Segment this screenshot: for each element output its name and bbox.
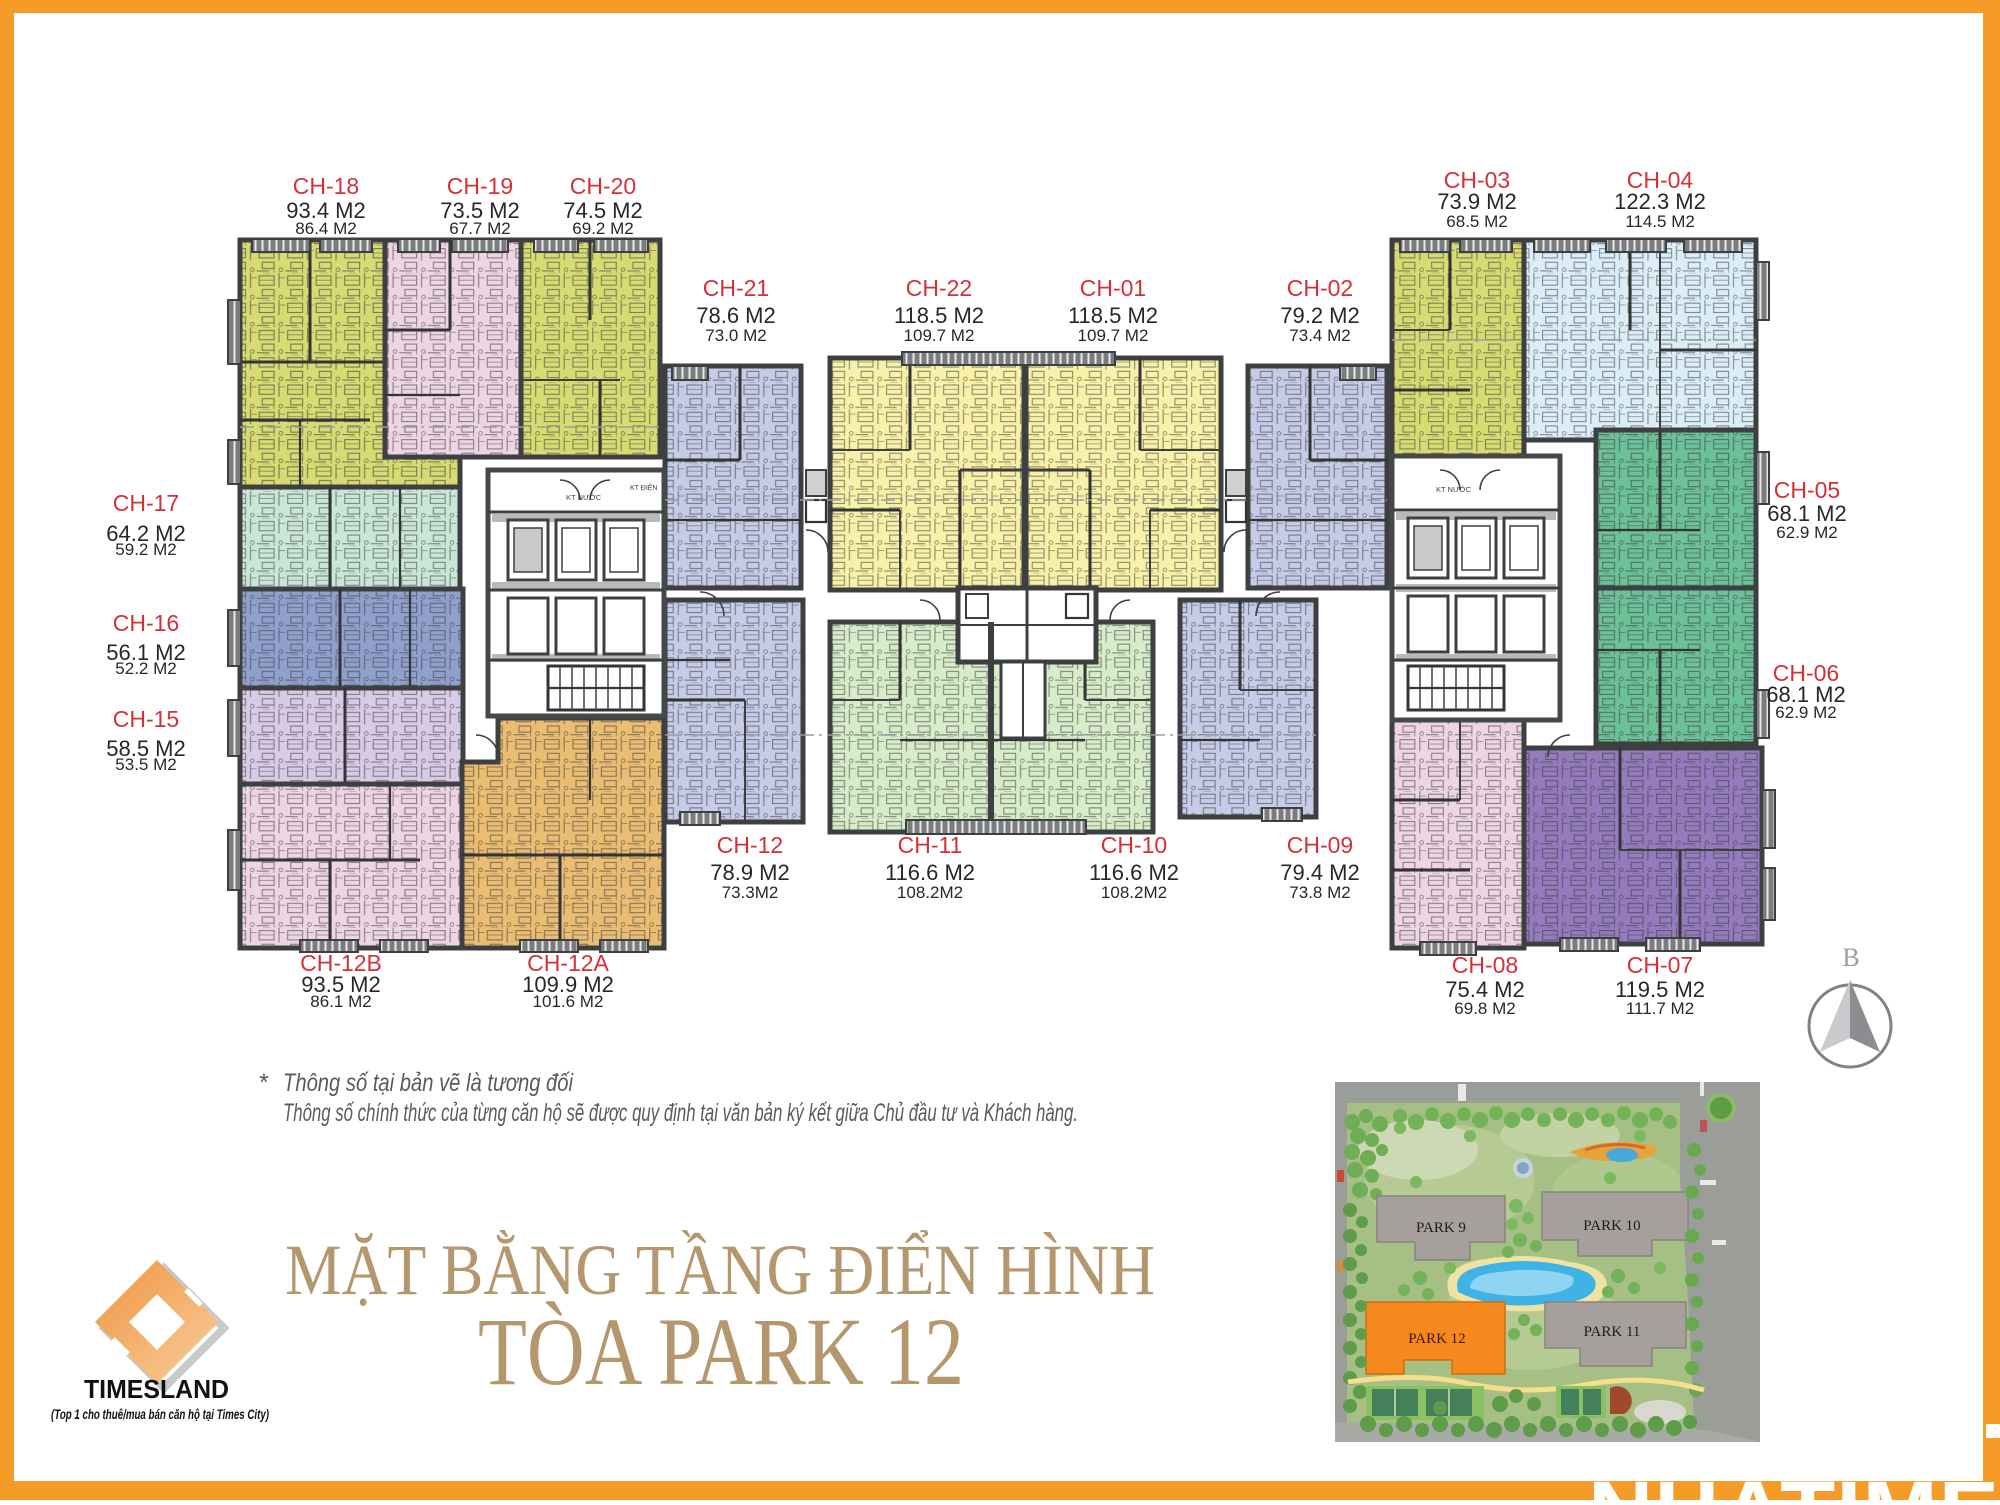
svg-text:KT NƯỚC: KT NƯỚC	[566, 493, 602, 502]
svg-text:52.2 M2: 52.2 M2	[115, 659, 176, 678]
svg-text:79.4 M2: 79.4 M2	[1280, 860, 1360, 885]
svg-text:78.6 M2: 78.6 M2	[696, 303, 776, 328]
svg-text:73.9 M2: 73.9 M2	[1437, 189, 1517, 214]
svg-text:CH-11: CH-11	[898, 832, 963, 858]
svg-text:118.5 M2: 118.5 M2	[894, 303, 984, 328]
svg-text:CH-08: CH-08	[1452, 952, 1518, 978]
svg-text:59.2 M2: 59.2 M2	[115, 540, 176, 559]
svg-text:116.6 M2: 116.6 M2	[1089, 860, 1179, 885]
svg-text:86.1 M2: 86.1 M2	[310, 992, 371, 1011]
svg-text:118.5 M2: 118.5 M2	[1068, 303, 1158, 328]
svg-text:116.6 M2: 116.6 M2	[885, 860, 975, 885]
svg-text:108.2M2: 108.2M2	[897, 883, 963, 902]
svg-text:62.9 M2: 62.9 M2	[1776, 523, 1837, 542]
svg-text:CH-17: CH-17	[113, 490, 179, 516]
svg-text:PARK 9: PARK 9	[1416, 1220, 1466, 1236]
svg-text:69.8 M2: 69.8 M2	[1454, 999, 1515, 1018]
svg-text:122.3 M2: 122.3 M2	[1614, 189, 1706, 214]
svg-text:73.3M2: 73.3M2	[722, 883, 779, 902]
svg-text:CH-10: CH-10	[1101, 832, 1167, 858]
svg-text:CH-12: CH-12	[717, 832, 783, 858]
svg-text:CH-16: CH-16	[113, 610, 179, 636]
svg-text:CH-01: CH-01	[1080, 275, 1146, 301]
svg-text:CH-07: CH-07	[1627, 952, 1693, 978]
svg-text:78.9 M2: 78.9 M2	[710, 860, 790, 885]
svg-text:111.7 M2: 111.7 M2	[1626, 999, 1694, 1018]
svg-text:NHATIME: NHATIME	[1588, 1464, 2000, 1500]
svg-text:109.7 M2: 109.7 M2	[1078, 326, 1149, 345]
svg-text:PARK 10: PARK 10	[1583, 1218, 1640, 1234]
svg-text:CH-15: CH-15	[113, 706, 179, 732]
svg-text:68.5 M2: 68.5 M2	[1446, 212, 1507, 231]
svg-text:CH-02: CH-02	[1287, 275, 1353, 301]
svg-text:79.2 M2: 79.2 M2	[1280, 303, 1360, 328]
svg-text:53.5 M2: 53.5 M2	[115, 755, 176, 774]
svg-text:TIMESLAND: TIMESLAND	[84, 1374, 229, 1404]
svg-text:CH-09: CH-09	[1287, 832, 1353, 858]
svg-text:73.8 M2: 73.8 M2	[1289, 883, 1350, 902]
svg-text:CH-19: CH-19	[447, 173, 513, 199]
svg-text:73.0 M2: 73.0 M2	[705, 326, 766, 345]
svg-text:109.7 M2: 109.7 M2	[904, 326, 975, 345]
svg-text:(Top 1 cho thuê/mua bán căn hộ: (Top 1 cho thuê/mua bán căn hộ tại Times…	[51, 1407, 269, 1422]
svg-text:62.9 M2: 62.9 M2	[1775, 703, 1836, 722]
svg-text:67.7 M2: 67.7 M2	[449, 219, 510, 238]
svg-text:B: B	[1842, 943, 1859, 972]
svg-text:73.4 M2: 73.4 M2	[1289, 326, 1350, 345]
svg-text:CH-18: CH-18	[293, 173, 359, 199]
svg-text:CH-22: CH-22	[906, 275, 972, 301]
svg-text:Thông số tại bản vẽ là tương đ: Thông số tại bản vẽ là tương đối	[283, 1069, 574, 1097]
svg-text:CH-21: CH-21	[703, 275, 769, 301]
svg-text:101.6 M2: 101.6 M2	[533, 992, 604, 1011]
svg-text:PARK 12: PARK 12	[1408, 1331, 1465, 1347]
svg-text:TÒA PARK 12: TÒA PARK 12	[478, 1298, 964, 1405]
svg-text:KT ĐIỆN: KT ĐIỆN	[630, 483, 658, 492]
svg-text:69.2 M2: 69.2 M2	[572, 219, 633, 238]
svg-text:Thông số chính thức của từng c: Thông số chính thức của từng căn hộ sẽ đ…	[283, 1099, 1078, 1127]
svg-text:114.5 M2: 114.5 M2	[1625, 212, 1695, 231]
svg-text:KT NƯỚC: KT NƯỚC	[1436, 485, 1472, 494]
svg-text:*: *	[258, 1069, 269, 1097]
svg-text:86.4 M2: 86.4 M2	[295, 219, 356, 238]
svg-text:CH-20: CH-20	[570, 173, 636, 199]
svg-text:108.2M2: 108.2M2	[1101, 883, 1167, 902]
svg-text:CH-05: CH-05	[1774, 477, 1840, 503]
svg-text:PARK 11: PARK 11	[1584, 1324, 1641, 1340]
